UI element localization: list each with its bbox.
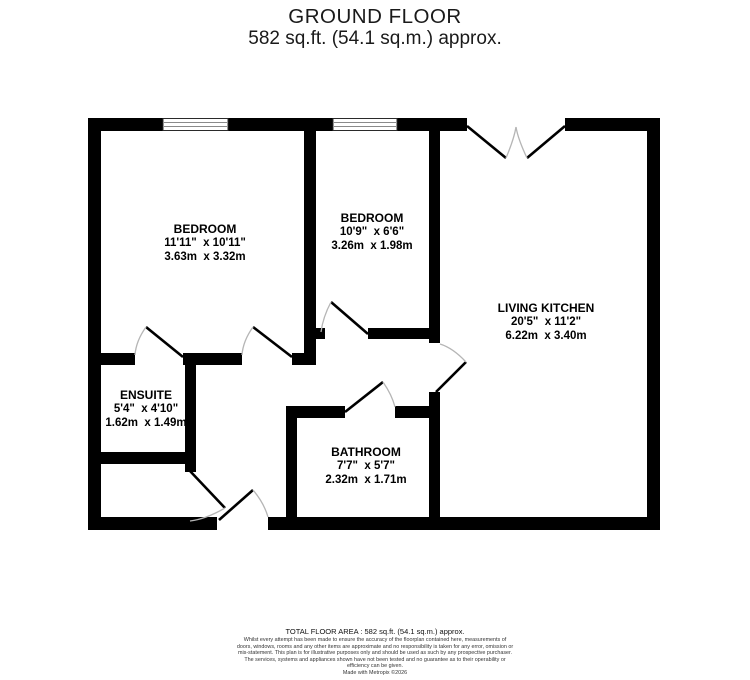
room-name: BEDROOM [164,222,246,236]
door-bedroom1 [242,327,292,357]
room-label-ensuite: ENSUITE 5'4" x 4'10" 1.62m x 1.49m [105,388,186,430]
door-entrance [219,490,268,520]
door-hall-livingkitchen [436,344,466,392]
room-dims-metric: 6.22m x 3.40m [498,329,595,343]
door-swing-arc [440,344,466,362]
window-frame [333,119,397,131]
door-double-livingkitchen [467,126,565,158]
door-ensuite [135,327,183,357]
wall-bed1-bottom-c [292,353,316,365]
door-leaf [345,382,383,412]
room-dims-imperial: 11'11" x 10'11" [164,236,246,250]
wall-livingkitchen-upper [429,131,440,343]
room-dims-metric: 2.32m x 1.71m [325,473,406,487]
room-name: ENSUITE [105,388,186,402]
floorplan-page: GROUND FLOOR 582 sq.ft. (54.1 sq.m.) app… [0,0,750,680]
room-dims-metric: 1.62m x 1.49m [105,416,186,430]
wall-top-d [565,118,660,131]
door-leaf [253,327,292,357]
wall-bathroom-left [286,418,297,517]
room-label-bathroom: BATHROOM 7'7" x 5'7" 2.32m x 1.71m [325,445,406,487]
floorplan-drawing [0,0,750,680]
door-swing-arc [135,327,146,355]
wall-bed2-bottom [368,328,438,339]
door-swing-arc [506,127,516,158]
room-name: BATHROOM [325,445,406,459]
door-leaf [190,471,225,508]
disclaimer-text: Whilst every attempt has been made to en… [236,637,514,670]
room-dims-imperial: 7'7" x 5'7" [325,459,406,473]
door-swing-arc [253,490,268,517]
room-name: BEDROOM [331,211,412,225]
window-frame [163,119,228,131]
door-leaf [219,490,253,520]
wall-left [88,118,101,530]
window-bedroom1 [163,119,228,131]
footer: TOTAL FLOOR AREA : 582 sq.ft. (54.1 sq.m… [0,627,750,677]
wall-top-c [397,118,467,131]
wall-bathroom-top-a [286,406,345,418]
wall-top-b [228,118,333,131]
wall-right [647,118,660,530]
door-leaf-left [467,126,506,158]
room-dims-metric: 3.63m x 3.32m [164,250,246,264]
wall-bed1-bottom-a [101,353,135,365]
door-leaf [146,327,183,357]
window-bedroom2 [333,119,397,131]
room-name: LIVING KITCHEN [498,301,595,315]
room-label-bedroom1: BEDROOM 11'11" x 10'11" 3.63m x 3.32m [164,222,246,264]
door-swing-arc [516,127,527,158]
door-swing-arc [383,382,395,407]
wall-bottom-b [268,517,660,530]
room-dims-metric: 3.26m x 1.98m [331,239,412,253]
door-closet [190,471,225,521]
wall-ensuite-bottom [101,452,196,464]
total-floor-area: TOTAL FLOOR AREA : 582 sq.ft. (54.1 sq.m… [0,627,750,636]
wall-bathroom-top-b [395,406,440,418]
room-label-living-kitchen: LIVING KITCHEN 20'5" x 11'2" 6.22m x 3.4… [498,301,595,343]
room-label-bedroom2: BEDROOM 10'9" x 6'6" 3.26m x 1.98m [331,211,412,253]
door-bedroom2 [321,302,368,334]
room-dims-imperial: 20'5" x 11'2" [498,315,595,329]
door-bathroom [345,382,395,412]
door-swing-arc [321,302,331,332]
door-swing-arc [242,327,253,355]
door-leaf [436,362,466,392]
room-dims-imperial: 5'4" x 4'10" [105,402,186,416]
door-leaf [331,302,368,334]
door-leaf-right [527,126,565,158]
room-dims-imperial: 10'9" x 6'6" [331,225,412,239]
metropix-credit: Made with Metropix ©2026 [0,670,750,677]
